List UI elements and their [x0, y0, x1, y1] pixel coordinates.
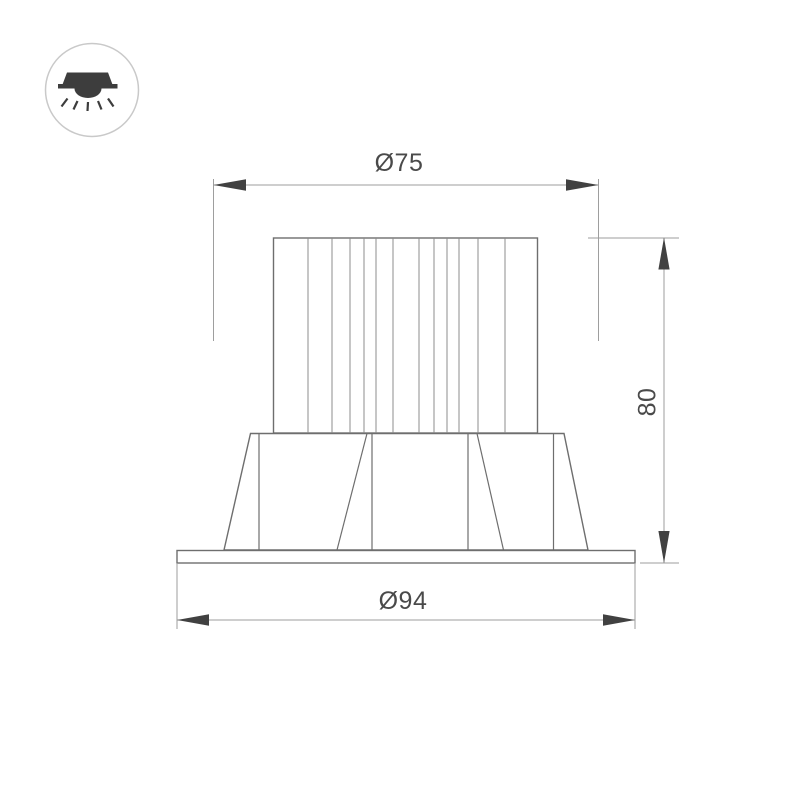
lower-cone-section — [224, 434, 588, 551]
arrowhead-bottom — [658, 531, 669, 563]
technical-drawing-canvas: Ø75 Ø94 80 — [0, 0, 800, 800]
heatsink-outline — [274, 238, 538, 433]
trim-flange — [177, 551, 635, 564]
dimension-height: 80 — [588, 238, 679, 564]
icon-housing-shape — [63, 73, 113, 85]
downlight-side-view — [177, 238, 635, 563]
dimension-bottom-diameter: Ø94 — [177, 563, 635, 629]
light-ray — [88, 102, 89, 111]
heatsink-body — [274, 238, 538, 433]
icon-trim-bar — [58, 84, 118, 89]
arrowhead-left — [214, 179, 247, 190]
arrowhead-right — [566, 179, 599, 190]
drawing-svg: Ø75 Ø94 80 — [0, 0, 800, 800]
arrowhead-right — [603, 614, 635, 625]
recessed-downlight-icon — [46, 44, 139, 137]
arrowhead-left — [177, 614, 209, 625]
arrowhead-top — [658, 238, 669, 270]
dimension-label-top-diameter: Ø75 — [375, 149, 424, 177]
dimension-label-bottom-diameter: Ø94 — [379, 587, 428, 615]
dimension-label-height: 80 — [634, 388, 662, 417]
cone-outline — [224, 434, 588, 551]
